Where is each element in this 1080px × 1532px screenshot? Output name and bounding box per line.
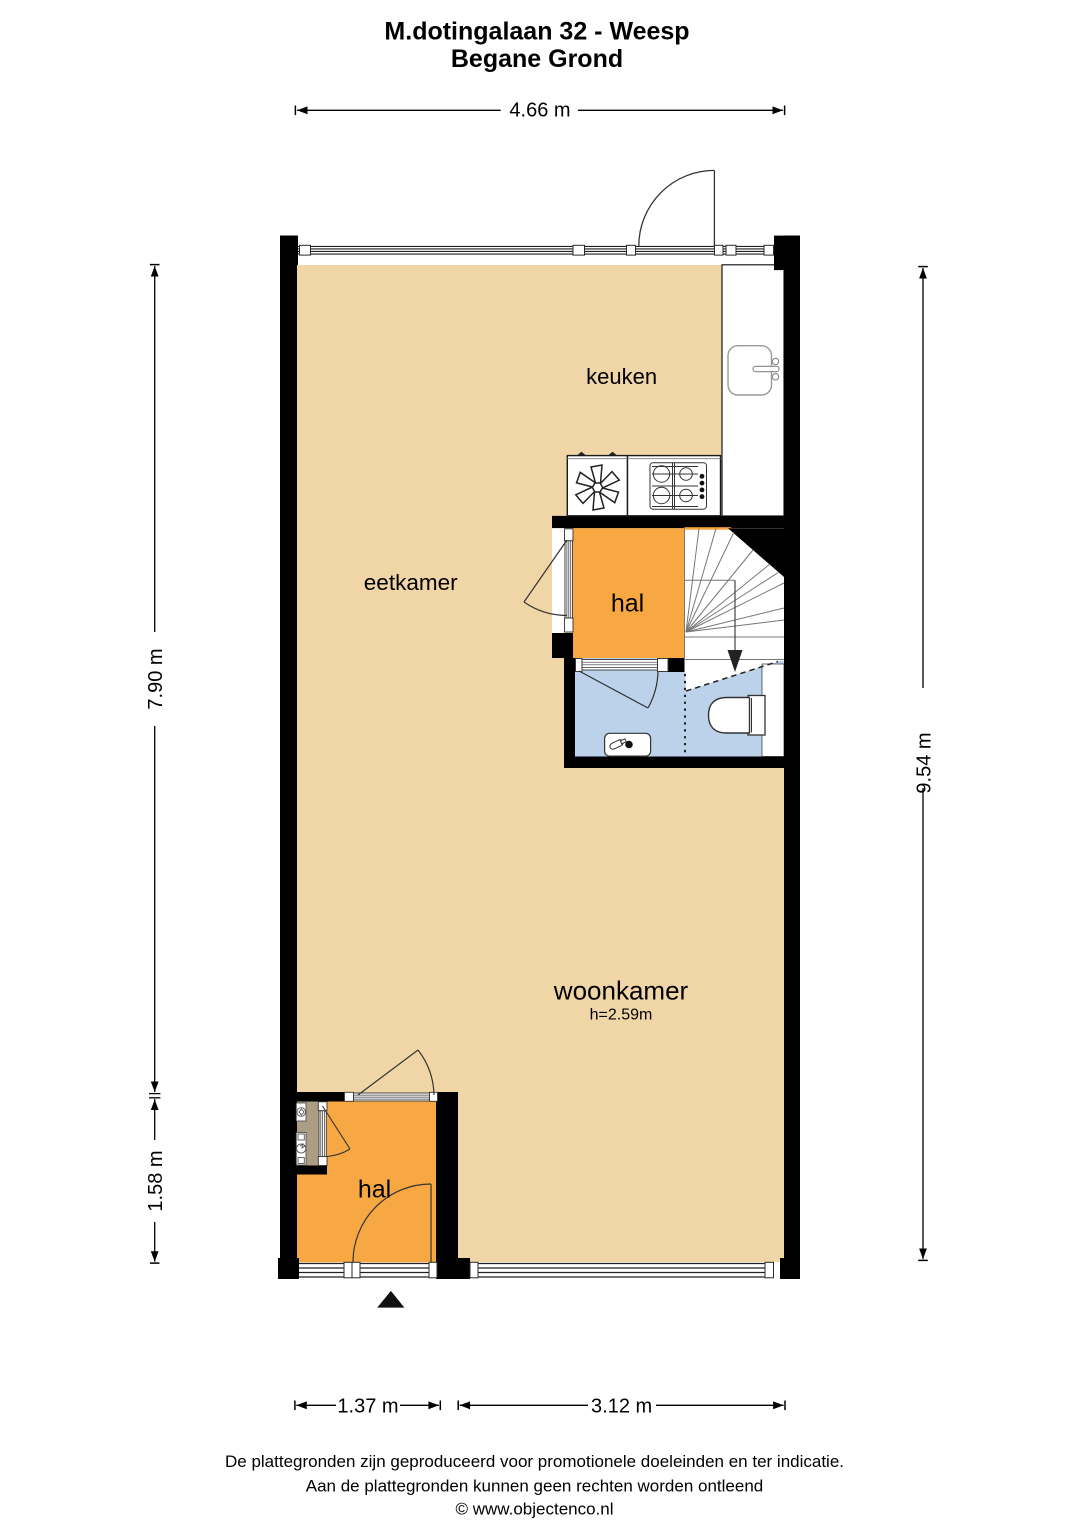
- svg-text:M.dotingalaan 32 - Weesp: M.dotingalaan 32 - Weesp: [384, 18, 689, 46]
- svg-text:hal: hal: [358, 1176, 391, 1204]
- svg-text:© www.objectenco.nl: © www.objectenco.nl: [455, 1499, 613, 1518]
- svg-text:Aan de plattegronden kunnen ge: Aan de plattegronden kunnen geen rechten…: [306, 1477, 763, 1496]
- svg-text:7.90 m: 7.90 m: [145, 648, 167, 709]
- svg-text:1.58 m: 1.58 m: [145, 1150, 167, 1211]
- svg-text:1.37 m: 1.37 m: [337, 1396, 398, 1418]
- svg-text:woonkamer: woonkamer: [553, 975, 689, 1005]
- svg-text:4.66 m: 4.66 m: [509, 100, 570, 122]
- svg-text:De plattegronden zijn geproduc: De plattegronden zijn geproduceerd voor …: [225, 1452, 844, 1471]
- svg-text:9.54 m: 9.54 m: [913, 732, 935, 793]
- svg-text:keuken: keuken: [586, 364, 657, 389]
- svg-text:Begane Grond: Begane Grond: [451, 45, 623, 73]
- svg-text:h=2.59m: h=2.59m: [590, 1007, 653, 1024]
- svg-text:3.12 m: 3.12 m: [591, 1396, 652, 1418]
- svg-text:eetkamer: eetkamer: [364, 570, 458, 595]
- svg-text:hal: hal: [611, 590, 644, 618]
